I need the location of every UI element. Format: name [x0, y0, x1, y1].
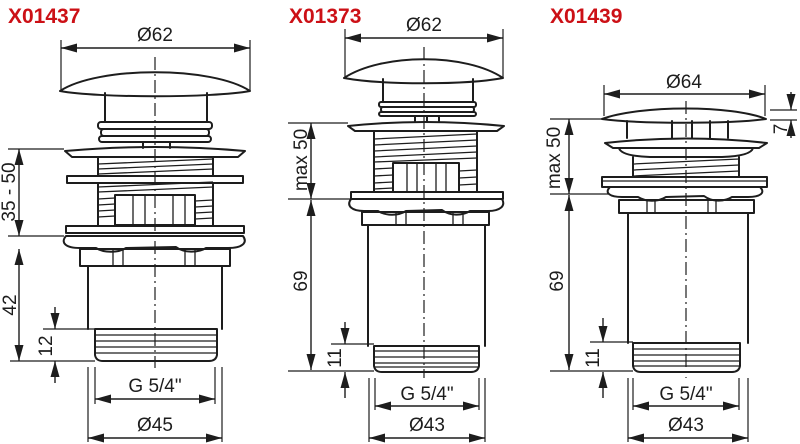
dim-clamp-range: max 50: [544, 127, 565, 189]
hex-nut-facets: [396, 212, 463, 225]
dim-cap-diameter: Ø62: [406, 15, 442, 36]
dim-thread-size: G 5/4": [128, 376, 181, 397]
outlet-thread: [95, 329, 217, 361]
drain-valve-drawings: X01437: [0, 0, 800, 444]
diagram-x01373: X01373: [288, 5, 504, 442]
dim-cap-diameter: Ø62: [137, 25, 173, 46]
thread-hatch: [633, 159, 739, 176]
dim-outlet-diameter: Ø43: [409, 415, 445, 436]
hex-nut: [362, 212, 489, 225]
dim-thread-length: 12: [36, 335, 57, 356]
dim-body-below: 42: [0, 294, 21, 315]
dim-body-height: 69: [547, 270, 568, 291]
dim-clamp-range: max 50: [291, 129, 312, 191]
part-number: X01437: [8, 5, 80, 28]
overflow-window: [393, 163, 459, 192]
valve-outline: [602, 109, 767, 373]
part-number: X01373: [289, 5, 361, 28]
outlet-thread: [374, 346, 479, 372]
dim-outlet-diameter: Ø43: [668, 415, 704, 436]
part-number: X01439: [550, 5, 622, 28]
dim-thread-length: 11: [325, 348, 346, 368]
dim-body-height: 69: [291, 270, 312, 291]
hex-nut-facets: [113, 249, 195, 266]
lock-flange: [602, 177, 767, 187]
dim-clamp-range: 35 - 50: [0, 162, 20, 221]
dim-thread-length: 11: [583, 348, 604, 368]
dimensions: Ø64 7 max 50 69 11 G 5/4" Ø43: [544, 72, 797, 442]
top-flange: [348, 122, 504, 131]
hex-nut-facets: [647, 200, 716, 213]
dim-thread-size: G 5/4": [400, 384, 453, 405]
diagram-x01439: X01439 Ø64: [544, 5, 797, 442]
technical-drawing-sheet: X01437: [0, 0, 800, 444]
thread-hatch: [374, 134, 477, 189]
lock-flange: [351, 192, 503, 199]
dimensions: Ø62 max 50 69 11 G 5/4" Ø43: [288, 15, 503, 442]
extension-lines: [288, 29, 503, 442]
top-flange: [605, 139, 767, 149]
dim-thread-size: G 5/4": [659, 384, 712, 405]
valve-body: [628, 213, 748, 343]
overflow-window-slots: [407, 163, 446, 192]
overflow-window-slots: [133, 195, 185, 225]
dim-cap-diameter: Ø64: [666, 72, 702, 93]
neck: [105, 93, 207, 122]
outlet-thread-lines: [95, 335, 217, 353]
dim-cap-height: 7: [771, 124, 792, 135]
diagram-x01437: X01437: [0, 5, 250, 442]
outlet-thread-lines: [374, 351, 479, 367]
seal-washer: [608, 187, 763, 201]
dim-outlet-diameter: Ø45: [137, 415, 173, 436]
valve-body: [368, 225, 485, 346]
